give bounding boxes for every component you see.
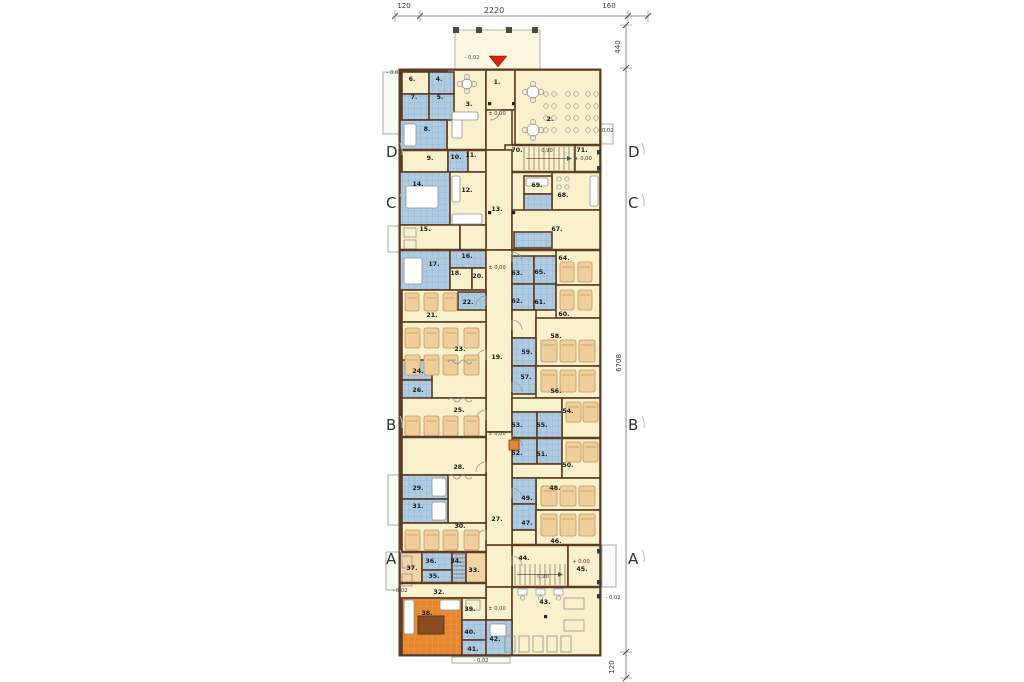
bed [560, 486, 576, 506]
sink [518, 589, 527, 595]
room-number: 63. [511, 270, 522, 277]
fixture [432, 502, 446, 520]
round-table [462, 79, 472, 89]
fixture [452, 176, 460, 202]
bed [560, 340, 576, 362]
room-area [512, 530, 536, 545]
entrance-canopy: - 0,02 [453, 27, 540, 70]
room-2 [515, 70, 600, 145]
bed [464, 355, 479, 375]
terrace [388, 226, 400, 252]
room-13 [486, 150, 512, 250]
elevation-label: - 0,02 [605, 595, 620, 601]
room-number: 38. [421, 610, 432, 617]
room-number: 7. [411, 94, 418, 101]
room-number: 45. [576, 566, 587, 573]
fixture [440, 600, 460, 610]
room-number: 36. [425, 558, 436, 565]
section-cut-mark [597, 549, 602, 554]
dimension-text: 120 [608, 660, 616, 673]
elevation-label: ± 0,00 [488, 606, 506, 612]
room-number: 26. [412, 387, 423, 394]
section-letter-B: B [628, 416, 638, 434]
fixture [490, 624, 506, 636]
elevation-label: 0,90 [541, 148, 553, 154]
room-number: 58. [550, 333, 561, 340]
room-19 [486, 250, 512, 432]
room-area [460, 225, 486, 250]
room-number: 60. [558, 311, 569, 318]
bed [405, 293, 419, 311]
canopy-column [532, 27, 538, 33]
room-number: 62. [511, 298, 522, 305]
room-number: 27. [491, 516, 502, 523]
bed [424, 355, 439, 375]
room-number: 40. [464, 629, 475, 636]
room-number: 35. [428, 573, 439, 580]
floorplan-page: - 0,023.1.2.6.4.7.5.8.9.10.11.70.71.14.1… [0, 0, 1024, 682]
room-number: 25. [453, 407, 464, 414]
room-number: 20. [472, 273, 483, 280]
room-number: 53. [511, 422, 522, 429]
room-number: 19. [491, 354, 502, 361]
room-number: 14. [412, 181, 423, 188]
fixture [452, 112, 478, 120]
bed [583, 442, 598, 462]
dimension-text: 2220 [484, 6, 504, 15]
terrace [602, 545, 616, 587]
section-letter-C: C [628, 194, 638, 212]
dimension-text: 160 [602, 2, 615, 10]
room-number: 2. [547, 116, 554, 123]
room-number: 33. [468, 567, 479, 574]
bed [443, 530, 458, 550]
sink [536, 589, 545, 595]
room-number: 55. [536, 422, 547, 429]
sink [554, 589, 563, 595]
section-letter-A: A [386, 550, 397, 568]
room-number: 18. [450, 270, 461, 277]
terrace [383, 72, 400, 134]
room-number: 41. [467, 646, 478, 653]
room-number: 43. [539, 599, 550, 606]
fixture [452, 214, 482, 224]
bed [579, 370, 595, 392]
round-table [527, 124, 539, 136]
room-number: 23. [454, 346, 465, 353]
section-letter-C: C [386, 194, 396, 212]
column-dot [488, 102, 491, 105]
bed [560, 290, 574, 310]
room-number: 21. [426, 312, 437, 319]
bed [405, 416, 420, 436]
room-number: 15. [419, 226, 430, 233]
room-number: 56. [550, 388, 561, 395]
section-letter-D: D [628, 143, 640, 161]
room-number: 11. [465, 152, 476, 159]
room-number: 22. [462, 299, 473, 306]
section-cut-mark [597, 150, 602, 155]
bed [583, 402, 598, 422]
bed [578, 290, 592, 310]
kitchen-island [418, 616, 444, 634]
shower-tray [509, 440, 519, 450]
room-number: 69. [531, 182, 542, 189]
room-number: 16. [461, 253, 472, 260]
bed [443, 416, 458, 436]
section-letter-A: A [628, 550, 639, 568]
room-number: 32. [433, 589, 444, 596]
room-number: 71. [576, 147, 587, 154]
elevation-label: - 0,02 [392, 588, 407, 594]
bed [424, 293, 438, 311]
fixture [590, 176, 598, 206]
room-number: 61. [534, 299, 545, 306]
room-number: 17. [428, 261, 439, 268]
room-28 [402, 437, 486, 475]
room-area [512, 464, 562, 478]
room-number: 50. [562, 462, 573, 469]
dimension-text: 120 [397, 2, 410, 10]
bed [566, 442, 581, 462]
bed [560, 262, 574, 282]
bed [464, 530, 479, 550]
section-cut-mark [597, 594, 602, 599]
column-dot [544, 615, 547, 618]
room-area [514, 232, 552, 248]
bed [464, 416, 479, 436]
room-number: 51. [536, 451, 547, 458]
elevation-label: ± 0,00 [488, 431, 506, 437]
terrace [600, 124, 613, 144]
room-number: 4. [436, 76, 443, 83]
elevation-label: - 0,02 [386, 70, 401, 76]
room-number: 59. [521, 349, 532, 356]
room-number: 34. [450, 558, 461, 565]
bed [579, 486, 595, 506]
section-flag [642, 550, 644, 562]
room-number: 24. [412, 368, 423, 375]
room-number: 5. [437, 94, 444, 101]
room-62 [512, 284, 534, 310]
terrace [388, 475, 400, 525]
elevation-label: + 0,00 [574, 156, 592, 162]
section-letter-D: D [386, 143, 398, 161]
room-43 [512, 587, 600, 655]
room-number: 39. [464, 606, 475, 613]
bed [443, 328, 458, 348]
bed [560, 514, 576, 536]
bed [560, 370, 576, 392]
elevation-label: ± 0,00 [488, 111, 506, 117]
room-number: 29. [412, 485, 423, 492]
room-number: 6. [409, 76, 416, 83]
room-number: 10. [450, 154, 461, 161]
fixture [432, 478, 446, 496]
elevation-label: - 0,02 [464, 55, 479, 61]
room-number: 65. [534, 269, 545, 276]
bed [541, 514, 557, 536]
room-number: 37. [406, 565, 417, 572]
fixture [404, 600, 414, 634]
room-area [512, 310, 536, 338]
elevation-label: - 0,02 [473, 658, 488, 664]
room-number: 64. [558, 255, 569, 262]
bed [464, 328, 479, 348]
bed [443, 293, 457, 311]
elevation-label: - 0,02 [598, 128, 613, 134]
room-area [448, 475, 486, 523]
column-dot [512, 211, 515, 214]
room-number: 46. [550, 538, 561, 545]
room-27 [486, 432, 512, 545]
dimension-text: 6708 [615, 354, 623, 372]
room-number: 42. [489, 636, 500, 643]
canopy-column [453, 27, 459, 33]
round-table [527, 86, 539, 98]
room-61 [534, 284, 556, 310]
room-number: 12. [461, 187, 472, 194]
room-number: 44. [518, 555, 529, 562]
fixture [406, 186, 438, 208]
room-number: 57. [520, 374, 531, 381]
room-number: 48. [549, 485, 560, 492]
room-number: 3. [466, 101, 473, 108]
room-area [512, 398, 562, 412]
column-dot [512, 102, 515, 105]
room-number: 8. [424, 126, 431, 133]
bed [424, 416, 439, 436]
section-cut-mark [597, 166, 602, 171]
bed [541, 340, 557, 362]
room-number: 67. [551, 226, 562, 233]
room-number: 68. [557, 192, 568, 199]
room-number: 54. [562, 408, 573, 415]
section-letter-B: B [386, 416, 396, 434]
bed [443, 355, 458, 375]
room-number: 28. [453, 464, 464, 471]
bed [405, 328, 420, 348]
room-number: 31. [412, 503, 423, 510]
room-number: 13. [491, 206, 502, 213]
bed [405, 530, 420, 550]
elevation-label: + 0,00 [572, 559, 590, 565]
bed [424, 328, 439, 348]
section-cut-mark [597, 580, 602, 585]
room-number: 70. [511, 147, 522, 154]
fixture [404, 258, 422, 284]
section-flag [642, 194, 644, 206]
canopy-column [476, 27, 482, 33]
room-9 [402, 150, 448, 172]
room-area [486, 587, 512, 620]
room-number: 9. [427, 155, 434, 162]
bed [579, 514, 595, 536]
room-number: 49. [521, 495, 532, 502]
room-number: 30. [454, 523, 465, 530]
elevation-label: 0,90 [537, 574, 549, 580]
canopy-column [506, 27, 512, 33]
room-number: 47. [521, 520, 532, 527]
fixture [404, 124, 416, 146]
room-6 [402, 72, 429, 94]
bed [424, 530, 439, 550]
elevation-label: ± 0,00 [488, 265, 506, 271]
room-area [486, 545, 512, 587]
room-number: 52. [511, 450, 522, 457]
room-number: 1. [494, 79, 501, 86]
section-flag [642, 143, 644, 155]
section-flag [642, 416, 644, 428]
dimension-text: 440 [614, 40, 622, 53]
floorplan-drawing: - 0,023.1.2.6.4.7.5.8.9.10.11.70.71.14.1… [0, 0, 1024, 682]
bed [579, 340, 595, 362]
bed [578, 262, 592, 282]
